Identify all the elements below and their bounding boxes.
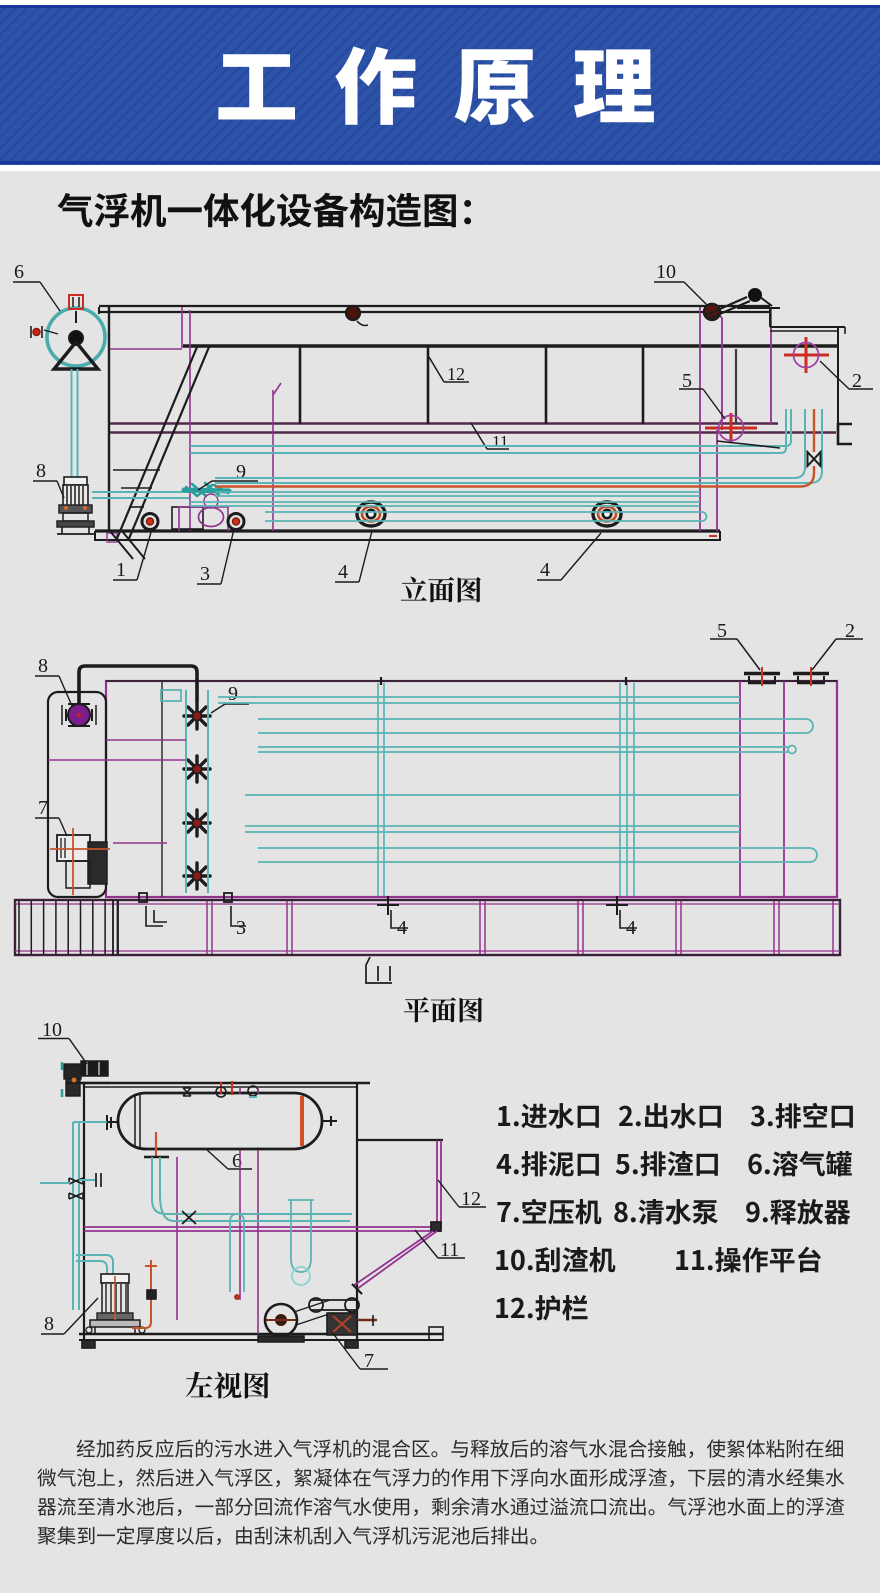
svg-text:4: 4 — [540, 559, 550, 581]
svg-text:9: 9 — [228, 683, 238, 705]
svg-text:7: 7 — [38, 797, 48, 819]
svg-text:1: 1 — [116, 559, 126, 581]
svg-text:11: 11 — [440, 1239, 459, 1261]
svg-text:8: 8 — [44, 1313, 54, 1335]
svg-text:4: 4 — [338, 561, 348, 583]
svg-text:3: 3 — [236, 917, 246, 939]
svg-text:10: 10 — [42, 1019, 62, 1041]
svg-text:12: 12 — [447, 364, 465, 384]
svg-text:4: 4 — [626, 917, 636, 939]
svg-text:8: 8 — [36, 460, 46, 482]
svg-text:3: 3 — [200, 563, 210, 585]
svg-text:12: 12 — [461, 1188, 481, 1210]
svg-text:4: 4 — [397, 917, 407, 939]
svg-text:8: 8 — [38, 655, 48, 677]
svg-text:7: 7 — [364, 1350, 374, 1372]
svg-text:10: 10 — [656, 261, 676, 283]
svg-text:6: 6 — [14, 261, 24, 283]
svg-text:9: 9 — [236, 461, 246, 483]
svg-text:11: 11 — [492, 432, 508, 451]
